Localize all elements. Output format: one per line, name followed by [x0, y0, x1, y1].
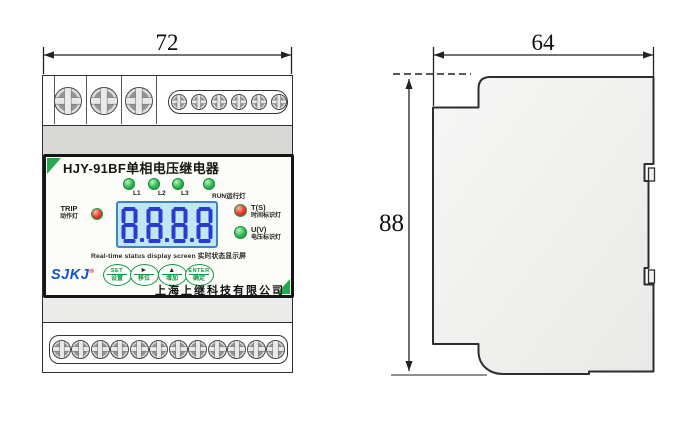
- screw-icon: [171, 94, 187, 110]
- set-button[interactable]: SET 设置: [103, 264, 132, 286]
- decimal-point: [140, 238, 144, 242]
- led-label-run: RUN运行灯: [212, 190, 246, 200]
- screw-icon: [149, 340, 168, 359]
- led-time: [234, 204, 247, 217]
- lower-gray-band: [43, 298, 292, 323]
- din-clip-lower: [649, 270, 655, 283]
- screw-icon: [271, 94, 287, 110]
- top-terminal-block: [43, 76, 292, 126]
- screw-icon: [52, 340, 71, 359]
- led-l2: [148, 178, 160, 190]
- led-label-l2: L2: [158, 190, 166, 197]
- led-label-l3: L3: [181, 190, 189, 197]
- arrow-right-icon: [281, 51, 291, 58]
- screw-icon: [188, 340, 207, 359]
- dim-72-label: 72: [156, 30, 179, 55]
- screw-icon: [54, 87, 82, 115]
- brand-logo: SJKJ®: [51, 267, 95, 283]
- terminal-divider: [121, 76, 122, 124]
- screw-icon: [110, 340, 129, 359]
- led-l1: [123, 178, 135, 190]
- front-panel: HJY-91BF单相电压继电器 L1 L2 L3 RUN运行灯 TRIP 动作灯…: [43, 154, 294, 298]
- dim-88-label: 88: [379, 210, 404, 237]
- upper-gray-band: [43, 126, 292, 154]
- led-l3: [172, 178, 184, 190]
- bottom-terminal-block: [43, 323, 292, 372]
- seven-segment-digit: [146, 207, 163, 243]
- lcd-display: [116, 201, 218, 248]
- dim-64-label: 64: [532, 30, 556, 55]
- screw-icon: [191, 94, 207, 110]
- decimal-point: [165, 238, 169, 242]
- screw-icon: [251, 94, 267, 110]
- arrow-left-icon: [44, 51, 54, 58]
- bottom-screw-strip: [49, 335, 288, 364]
- product-title: HJY-91BF单相电压继电器: [63, 158, 219, 177]
- registered-mark: ®: [89, 268, 94, 275]
- up-arrow-icon: ▲: [168, 268, 175, 274]
- time-indicator-label: T(S) 时间标识灯: [251, 204, 281, 220]
- screw-icon: [247, 340, 266, 359]
- arrow-up-icon: [405, 79, 412, 89]
- voltage-indicator-label: U(V) 电压标识灯: [251, 226, 281, 242]
- relay-front-view: HJY-91BF单相电压继电器 L1 L2 L3 RUN运行灯 TRIP 动作灯…: [42, 75, 293, 373]
- screw-icon: [227, 340, 246, 359]
- screw-icon: [71, 340, 90, 359]
- arrow-down-icon: [405, 361, 412, 371]
- screw-icon: [208, 340, 227, 359]
- top-screw-strip: [168, 90, 288, 114]
- arrow-left-icon: [434, 51, 444, 58]
- screw-icon: [90, 87, 118, 115]
- led-label-l1: L1: [133, 190, 141, 197]
- corner-triangle-icon: [47, 158, 61, 174]
- arrow-right-icon: [643, 51, 653, 58]
- led-trip: [91, 208, 103, 220]
- screw-icon: [169, 340, 188, 359]
- screw-icon: [266, 340, 285, 359]
- company-name: 上海上继科技有限公司: [155, 282, 285, 298]
- screw-icon: [211, 94, 227, 110]
- screw-icon: [130, 340, 149, 359]
- terminal-divider: [86, 76, 87, 124]
- terminal-divider: [156, 76, 157, 124]
- side-profile: [433, 77, 654, 374]
- led-run: [203, 178, 215, 190]
- din-clip-upper: [649, 168, 655, 181]
- seven-segment-digit: [121, 207, 138, 243]
- display-caption: Real-time status display screen 实时状态显示屏: [46, 250, 291, 260]
- seven-segment-digit: [196, 207, 213, 243]
- led-voltage: [234, 226, 247, 239]
- seven-segment-digit: [171, 207, 188, 243]
- decimal-point: [190, 238, 194, 242]
- screw-icon: [91, 340, 110, 359]
- screw-icon: [231, 94, 247, 110]
- technical-drawing: 72 64 88: [0, 0, 700, 428]
- screw-icon: [125, 87, 153, 115]
- trip-indicator-label: TRIP 动作灯: [54, 205, 84, 221]
- right-arrow-icon: ►: [140, 268, 147, 274]
